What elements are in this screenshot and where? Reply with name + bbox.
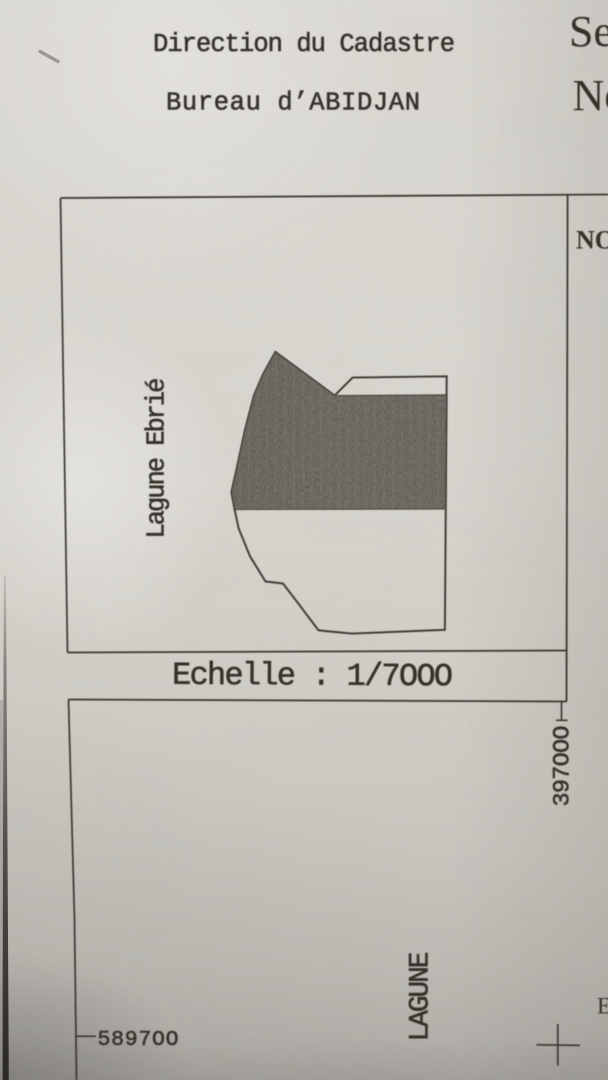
svg-text:No: No (573, 71, 608, 120)
svg-text:5897OO: 5897OO (98, 1028, 179, 1052)
svg-text:NO: NO (576, 226, 608, 255)
svg-text:Bureau d’ABIDJAN: Bureau d’ABIDJAN (166, 89, 420, 118)
svg-text:Direction du Cadastre: Direction du Cadastre (153, 30, 455, 59)
svg-text:Echelle : 1/7OOO: Echelle : 1/7OOO (172, 657, 453, 695)
svg-text:LAGUNE: LAGUNE (405, 952, 436, 1042)
svg-text:Lagune Ebrié: Lagune Ebrié (143, 378, 172, 539)
svg-text:Se: Se (569, 7, 608, 56)
svg-text:E: E (597, 994, 608, 1019)
svg-text:397OOO: 397OOO (550, 726, 577, 807)
